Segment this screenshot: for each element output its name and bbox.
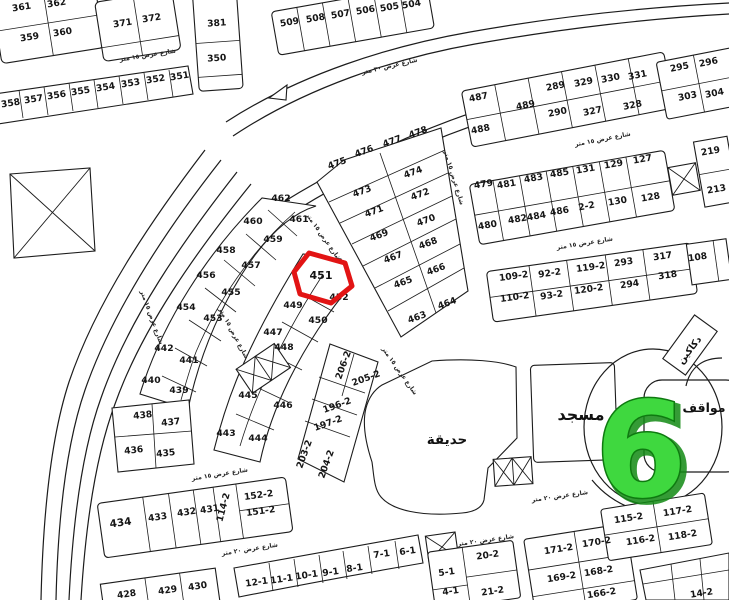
street-name-label: شارع عرض ٢٠ متر xyxy=(530,489,588,504)
plot-label-461: 461 xyxy=(289,214,308,225)
plot-label-6-1: 6-1 xyxy=(399,545,417,558)
traffic-island xyxy=(269,85,287,100)
block-381-350 xyxy=(193,0,244,91)
block-295-304 xyxy=(656,48,729,120)
block-corner-se xyxy=(640,553,729,600)
plot-label-381: 381 xyxy=(207,17,227,29)
plot-label-444: 444 xyxy=(248,433,267,444)
street-name-label: شارع عرض ١٥ متر xyxy=(138,289,164,346)
map-canvas: شارع عرض ١٥ مترشارع عرض ٣٠ مترشارع عرض ١… xyxy=(0,0,729,600)
plot-label-8-1: 8-1 xyxy=(346,562,364,575)
plot-label-456: 456 xyxy=(196,270,215,281)
plot-label-442: 442 xyxy=(154,343,173,354)
plot-label-460: 460 xyxy=(243,216,262,227)
block-435-438 xyxy=(112,400,194,472)
plot-label-7-1: 7-1 xyxy=(373,548,391,561)
plot-label-428: 428 xyxy=(116,588,137,600)
x-marker-mosque xyxy=(493,457,533,487)
garden-label: حديقة xyxy=(427,432,468,448)
plot-label-448: 448 xyxy=(274,342,293,353)
plot-label-350: 350 xyxy=(207,52,227,64)
district-number: 6 6 xyxy=(595,374,691,532)
plot-label-436: 436 xyxy=(124,444,144,457)
plot-label-5-1: 5-1 xyxy=(438,566,456,579)
plot-label-435: 435 xyxy=(156,447,176,460)
plot-label-449: 449 xyxy=(283,300,302,311)
plot-label-457: 457 xyxy=(241,260,260,271)
street-name-label: شارع عرض ٢٠ متر xyxy=(220,542,278,558)
plot-label-451-highlighted: 451 xyxy=(310,269,333,282)
street-name-label: شارع عرض ١٥ متر xyxy=(573,131,631,149)
plot-label-438: 438 xyxy=(133,409,153,422)
plot-label-439: 439 xyxy=(169,385,188,396)
plot-label-437: 437 xyxy=(161,416,181,429)
plot-label-443: 443 xyxy=(216,428,235,439)
plot-label-453: 453 xyxy=(203,313,222,324)
x-marker-east xyxy=(668,163,700,195)
plot-label-458: 458 xyxy=(216,245,235,256)
plot-label-4-1: 4-1 xyxy=(442,585,460,598)
plot-label-462: 462 xyxy=(271,193,290,204)
cadastral-map: شارع عرض ١٥ مترشارع عرض ٣٠ مترشارع عرض ١… xyxy=(0,0,729,600)
plot-label-455: 455 xyxy=(221,287,240,298)
district-number-digit: 6 xyxy=(595,374,687,528)
landmark-square-marker xyxy=(10,168,95,258)
plot-label-454: 454 xyxy=(176,302,195,313)
block-487-331 xyxy=(461,52,674,147)
plot-label-445: 445 xyxy=(238,390,257,401)
plot-label-446: 446 xyxy=(273,400,292,411)
street-name-label: شارع عرض ١٥ متر xyxy=(190,467,248,483)
plot-label-450: 450 xyxy=(308,315,327,326)
plot-label-459: 459 xyxy=(263,234,282,245)
street-name-label: شارع عرض ١٥ متر xyxy=(555,236,613,252)
street-name-label: شارع عرض ٣٠ متر xyxy=(360,57,418,77)
plot-label-9-1: 9-1 xyxy=(322,566,340,579)
plot-label-441: 441 xyxy=(179,355,198,366)
plot-label-447: 447 xyxy=(263,327,282,338)
plot-label-440: 440 xyxy=(141,375,160,386)
